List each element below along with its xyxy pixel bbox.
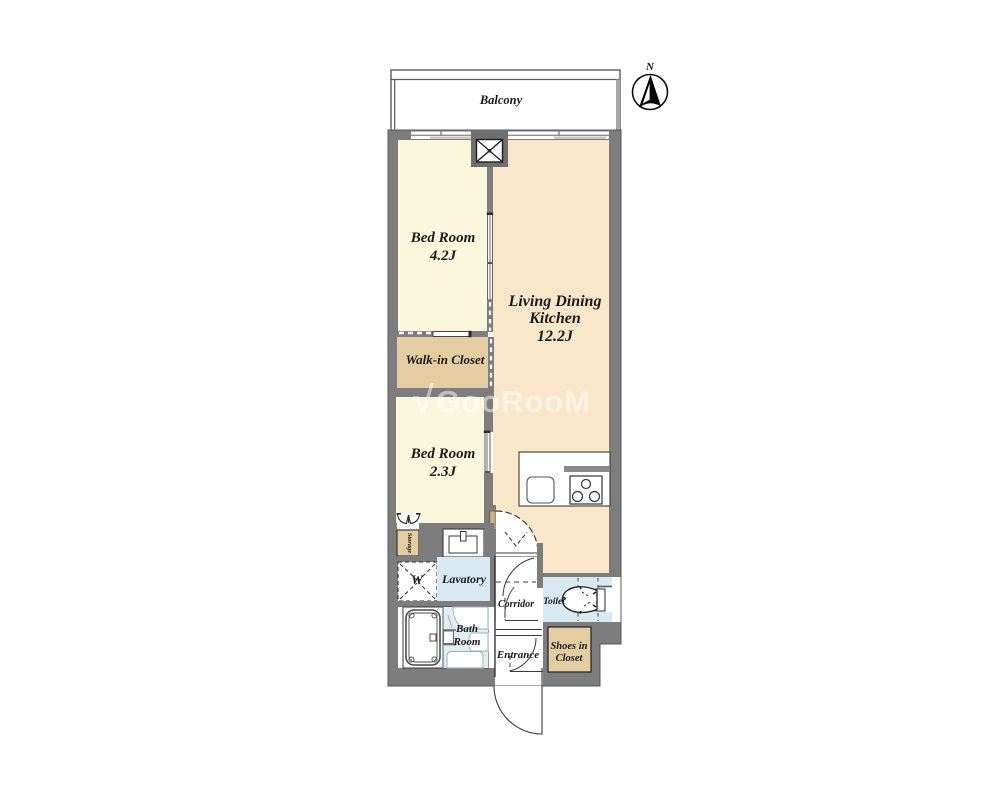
svg-text:2.3J: 2.3J bbox=[429, 464, 457, 480]
svg-text:N: N bbox=[645, 61, 655, 73]
svg-text:Bath: Bath bbox=[455, 623, 478, 635]
svg-text:Entrance: Entrance bbox=[496, 649, 539, 661]
svg-text:Bed Room: Bed Room bbox=[410, 230, 476, 246]
svg-text:Room: Room bbox=[453, 636, 481, 648]
svg-text:GooRooM: GooRooM bbox=[436, 384, 591, 419]
svg-text:Closet: Closet bbox=[556, 653, 584, 664]
svg-text:Shoes in: Shoes in bbox=[550, 641, 587, 652]
svg-text:12.2J: 12.2J bbox=[537, 328, 574, 345]
svg-text:Living Dining: Living Dining bbox=[508, 293, 602, 310]
svg-text:Balcony: Balcony bbox=[479, 93, 523, 107]
svg-text:Lavatory: Lavatory bbox=[441, 572, 487, 586]
svg-text:Kitchen: Kitchen bbox=[528, 310, 581, 327]
svg-text:√: √ bbox=[413, 380, 434, 422]
svg-text:4.2J: 4.2J bbox=[429, 248, 457, 264]
svg-text:Walk-in Closet: Walk-in Closet bbox=[406, 352, 485, 367]
svg-text:Corridor: Corridor bbox=[498, 599, 534, 610]
svg-text:W: W bbox=[411, 572, 424, 587]
svg-text:Toilet: Toilet bbox=[543, 597, 565, 607]
svg-text:Storage: Storage bbox=[406, 533, 413, 554]
svg-text:Bed Room: Bed Room bbox=[410, 446, 476, 462]
